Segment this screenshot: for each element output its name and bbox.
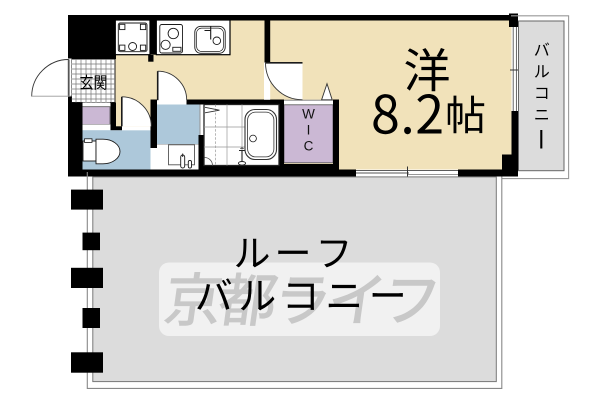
svg-text:C: C (304, 139, 314, 154)
svg-text:I: I (307, 123, 311, 138)
svg-text:W: W (302, 107, 315, 122)
